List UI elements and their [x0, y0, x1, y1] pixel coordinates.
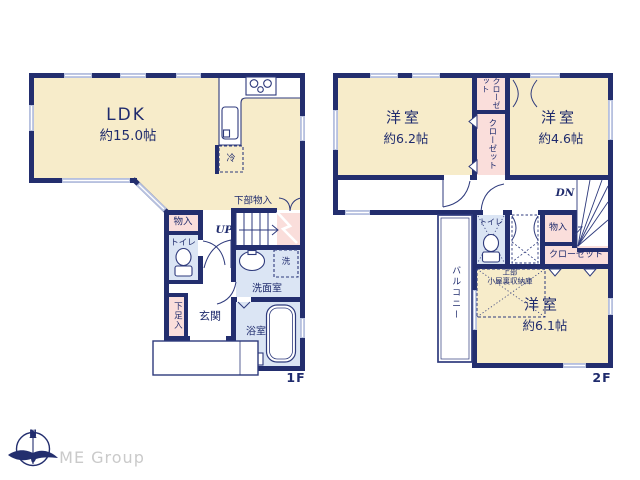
label-bedroom-left: 洋室 — [386, 109, 422, 126]
floorplan-page: LDK 約15.0帖 冷 下部物入 物入 UP トイレ 洗 洗面室 下足入 玄関… — [0, 0, 640, 480]
label-bedroom-right-size: 約4.6帖 — [539, 132, 584, 146]
door-openings-2f — [444, 175, 538, 215]
toilet-icon-1f — [175, 249, 192, 277]
label-compass-north: N — [29, 429, 37, 439]
floorplan-drawing — [0, 0, 640, 480]
label-bedroom-left-size: 約6.2帖 — [384, 132, 429, 146]
label-toilet-2f: トイレ — [479, 217, 503, 226]
stair-landing-1f — [277, 213, 300, 245]
stove-icon — [246, 77, 276, 95]
label-shoe-storage: 下足入 — [172, 302, 182, 331]
label-bedroom-bottom-size: 約6.1帖 — [523, 319, 568, 333]
label-storage-2f: 物入 — [549, 223, 567, 233]
brand-logo-text: ME Group — [59, 449, 145, 467]
label-stairs-up: UP — [215, 224, 232, 236]
label-closet-2f: クローゼット — [549, 250, 603, 260]
label-washer: 洗 — [282, 258, 291, 268]
label-closet-upper: クローゼット — [480, 77, 502, 113]
label-toilet-1f: トイレ — [170, 239, 196, 249]
stairs-1f — [236, 213, 278, 245]
label-closet-middle: クローゼット — [486, 119, 496, 170]
label-entrance: 玄関 — [199, 311, 221, 324]
stairs-2f — [575, 180, 608, 248]
label-fridge: 冷 — [226, 154, 235, 164]
label-floor-2f: 2F — [592, 371, 611, 385]
label-under-stair-storage: 下部物入 — [234, 197, 272, 208]
label-bedroom-right: 洋室 — [541, 109, 577, 126]
label-stairs-down: DN — [556, 187, 575, 199]
label-washroom: 洗面室 — [252, 283, 282, 295]
toilet-icon-2f — [483, 235, 500, 263]
label-bedroom-bottom: 洋室 — [524, 296, 560, 313]
label-attic-line2: 小屋裏収納庫 — [488, 277, 533, 286]
label-storage-1f: 物入 — [173, 218, 192, 229]
label-floor-1f: 1F — [286, 371, 305, 385]
label-ldk: LDK — [106, 106, 146, 126]
label-bathroom: 浴室 — [246, 326, 266, 338]
kitchen-sink-icon — [222, 107, 238, 139]
label-ldk-size: 約15.0帖 — [99, 129, 156, 145]
bathtub-icon — [267, 305, 296, 362]
label-balcony: バルコニー — [450, 266, 460, 321]
porch — [153, 341, 258, 375]
